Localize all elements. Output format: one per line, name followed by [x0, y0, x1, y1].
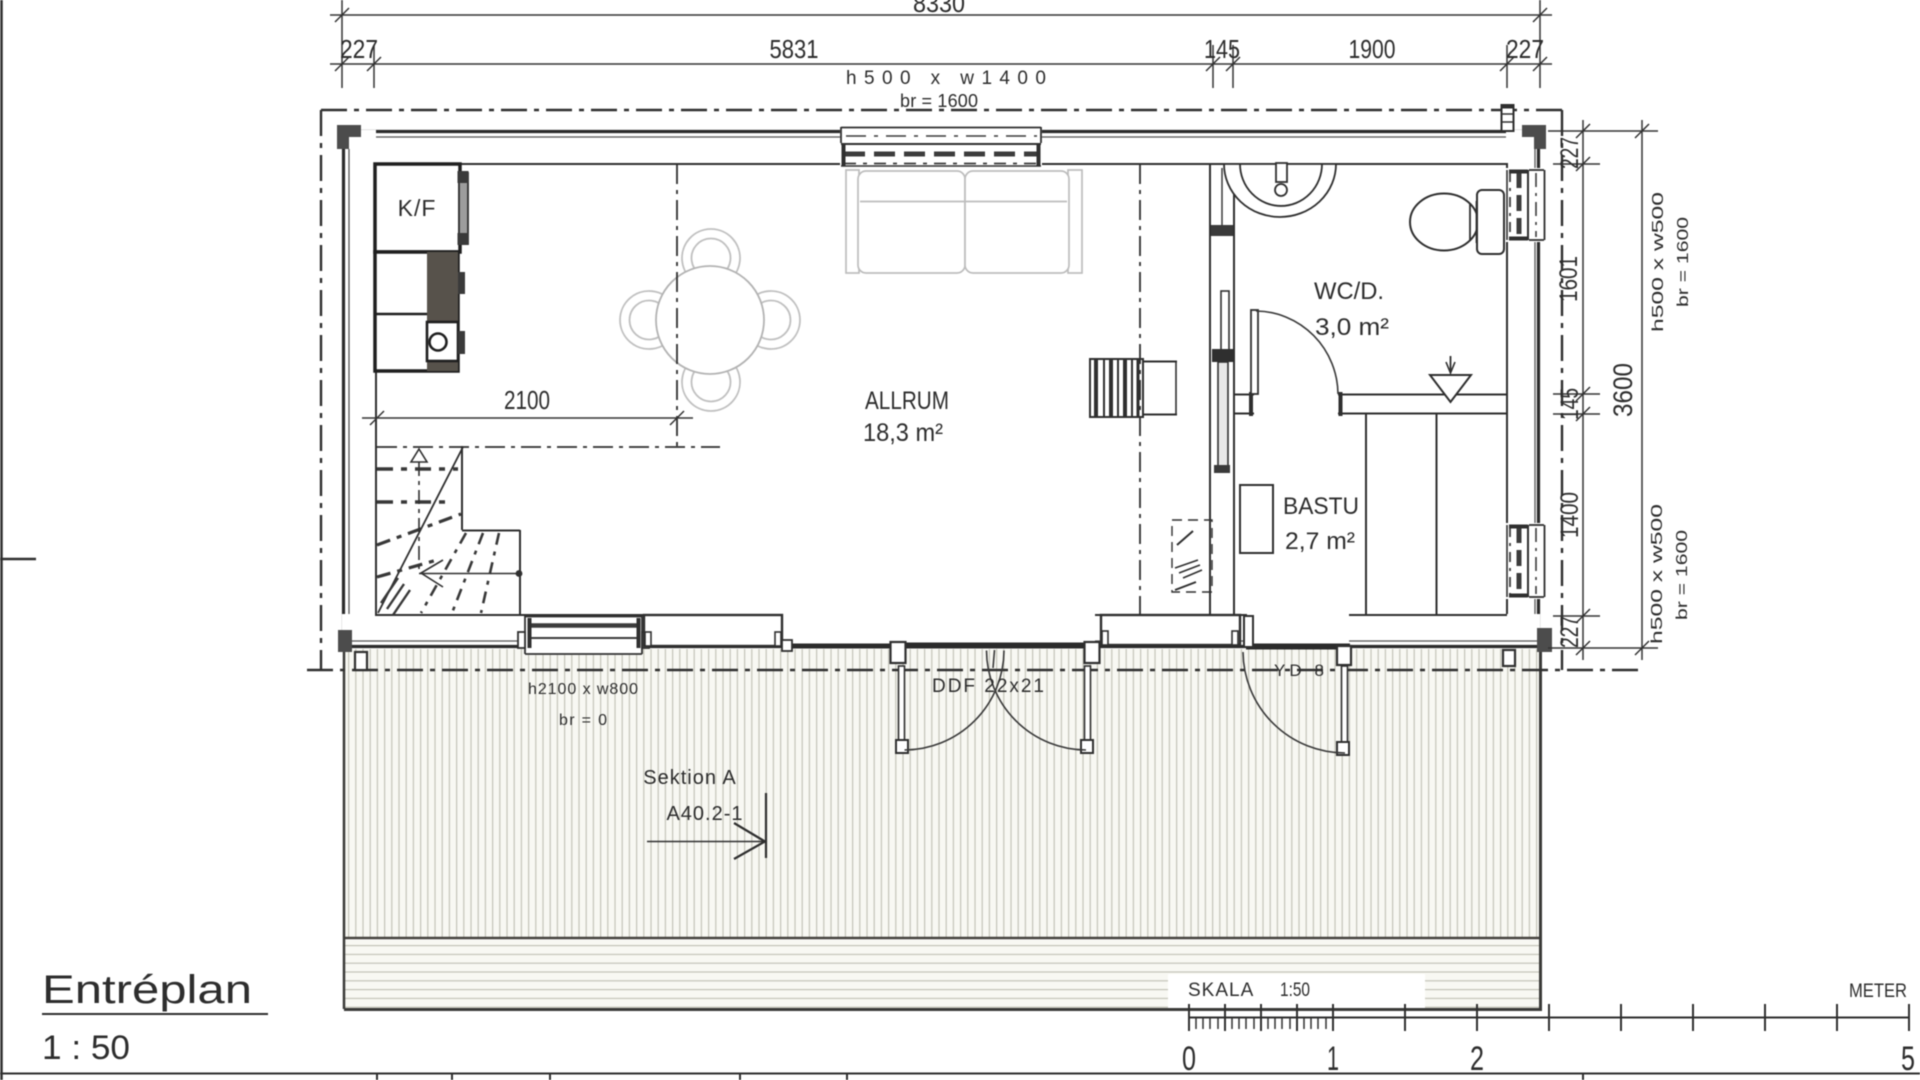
svg-text:2: 2	[1470, 1040, 1484, 1078]
svg-text:227: 227	[1556, 616, 1584, 648]
svg-text:2100: 2100	[504, 385, 550, 415]
svg-text:8330: 8330	[913, 0, 965, 18]
svg-text:Entréplan: Entréplan	[42, 968, 252, 1012]
svg-text:SKALA: SKALA	[1188, 980, 1254, 1001]
svg-text:Sektion A: Sektion A	[643, 767, 737, 789]
svg-text:227: 227	[1506, 34, 1544, 64]
svg-text:2,7 m²: 2,7 m²	[1285, 528, 1355, 555]
svg-text:1: 1	[1327, 1040, 1339, 1078]
svg-text:h500 x w500: h500 x w500	[1649, 504, 1666, 644]
svg-text:YD 8: YD 8	[1274, 661, 1324, 680]
svg-text:WC/D.: WC/D.	[1314, 278, 1384, 305]
svg-text:K/F: K/F	[398, 195, 437, 221]
svg-text:ALLRUM: ALLRUM	[865, 387, 949, 415]
svg-text:br = 1600: br = 1600	[900, 91, 978, 111]
svg-text:227: 227	[340, 34, 378, 64]
svg-text:227: 227	[1556, 137, 1584, 169]
svg-text:DDF 22x21: DDF 22x21	[932, 676, 1044, 697]
svg-text:br = 1600: br = 1600	[1675, 217, 1692, 307]
svg-text:3,0 m²: 3,0 m²	[1315, 314, 1389, 341]
svg-text:br = 1600: br = 1600	[1674, 530, 1691, 620]
svg-text:1 : 50: 1 : 50	[42, 1029, 130, 1067]
svg-text:1:50: 1:50	[1280, 980, 1310, 1001]
svg-text:18,3 m²: 18,3 m²	[863, 419, 943, 447]
svg-text:1601: 1601	[1555, 256, 1583, 302]
svg-text:BASTU: BASTU	[1283, 493, 1359, 520]
svg-text:br = 0: br = 0	[559, 712, 607, 729]
svg-text:3600: 3600	[1608, 363, 1638, 417]
svg-text:METER: METER	[1849, 981, 1907, 1002]
svg-text:A40.2-1: A40.2-1	[666, 803, 743, 825]
svg-text:5831: 5831	[770, 34, 819, 64]
svg-text:1900: 1900	[1349, 34, 1396, 64]
svg-text:h2100 x w800: h2100 x w800	[528, 681, 638, 698]
svg-text:0: 0	[1182, 1040, 1196, 1078]
svg-text:5: 5	[1901, 1040, 1915, 1078]
svg-text:h500 x w500: h500 x w500	[1650, 192, 1667, 332]
svg-text:145: 145	[1556, 388, 1584, 420]
svg-text:1400: 1400	[1556, 492, 1584, 538]
svg-text:145: 145	[1204, 34, 1240, 64]
